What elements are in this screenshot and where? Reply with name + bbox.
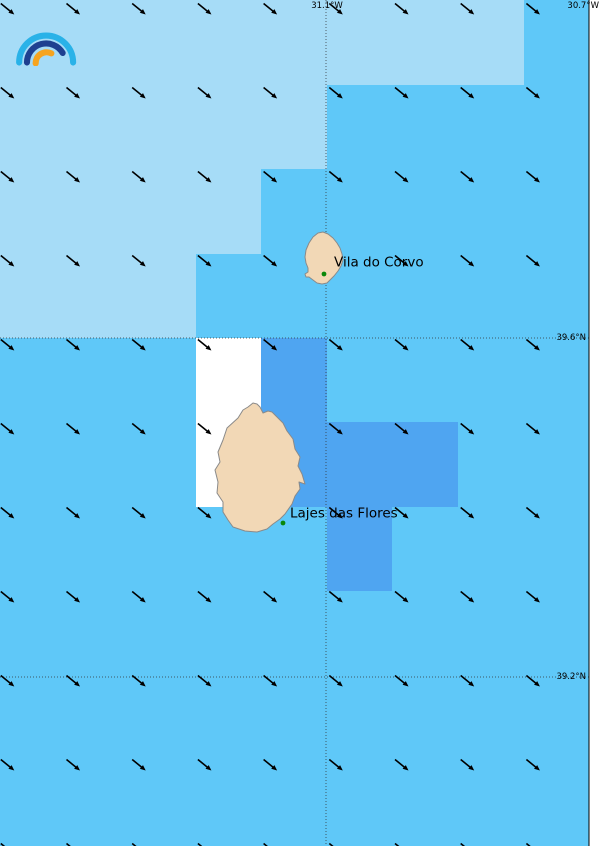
wind-map: 31.1°W 30.7°W 39.6°N 39.2°N Vila do Corv… [0, 0, 600, 846]
logo-arc-inner [36, 52, 52, 63]
rainbow-logo [12, 19, 82, 66]
map-margin [590, 0, 600, 846]
place-dot [281, 521, 286, 526]
sea-dark-region [327, 507, 392, 591]
place-dot [322, 272, 327, 277]
sea-dark-region [327, 422, 458, 507]
map-canvas [0, 0, 600, 846]
